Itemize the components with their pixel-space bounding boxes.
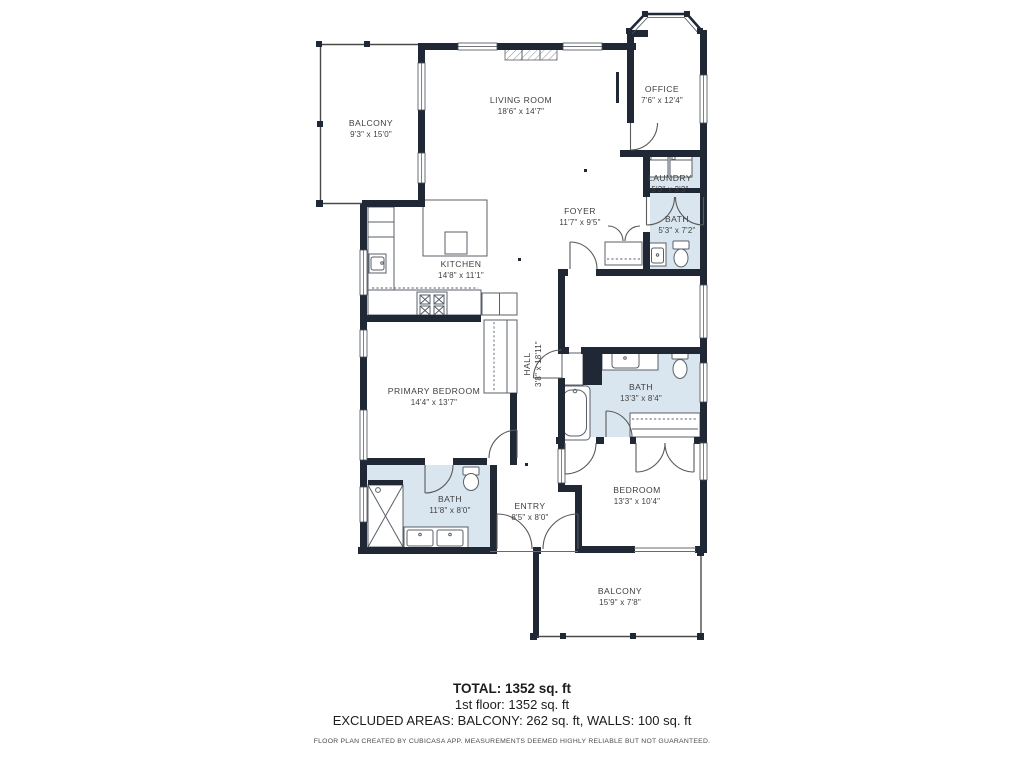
toilet-bowl — [673, 360, 687, 379]
window — [418, 153, 425, 183]
room-label-hall: HALL — [522, 352, 532, 375]
window — [458, 43, 497, 50]
toilet-bowl — [674, 249, 688, 267]
room-label-bath-upper: 5'3" x 7'2" — [658, 226, 695, 235]
room-label-bath-lower: BATH — [438, 494, 462, 504]
window — [558, 449, 565, 483]
double-door-bedroom-closet — [636, 443, 694, 472]
room-label-office: OFFICE — [645, 84, 679, 94]
floor-plan: BALCONY9'3" x 15'0"LIVING ROOM18'6" x 14… — [0, 0, 1024, 676]
room-label-bath-main: BATH — [629, 382, 653, 392]
window — [700, 443, 707, 480]
window — [360, 250, 367, 295]
room-label-bath-upper: BATH — [665, 214, 689, 224]
door-office — [631, 123, 658, 150]
window — [563, 43, 602, 50]
window — [700, 285, 707, 338]
room-label-foyer: FOYER — [564, 206, 596, 216]
toilet-bowl — [464, 474, 479, 491]
room-label-laundry: LAUNDRY — [648, 173, 692, 183]
room-label-balcony-top: BALCONY — [349, 118, 393, 128]
window — [418, 63, 425, 110]
door-foyer — [570, 242, 597, 269]
room-label-bedroom: 13'3" x 10'4" — [614, 497, 660, 506]
room-label-kitchen: 14'8" x 11'1" — [438, 271, 484, 280]
room-label-primary-bedroom: PRIMARY BEDROOM — [388, 386, 480, 396]
room-label-living-room: LIVING ROOM — [490, 95, 552, 105]
floor-plan-page: BALCONY9'3" x 15'0"LIVING ROOM18'6" x 14… — [0, 0, 1024, 768]
first-floor-area: 1st floor: 1352 sq. ft — [0, 697, 1024, 713]
window — [360, 410, 367, 460]
room-label-hall: 3'8" x 18'11" — [534, 341, 543, 387]
bath-closet — [630, 413, 700, 437]
total-area: TOTAL: 1352 sq. ft — [0, 681, 1024, 697]
room-label-office: 7'6" x 12'4" — [641, 96, 683, 105]
window — [360, 487, 367, 522]
window — [360, 330, 367, 357]
area-summary: TOTAL: 1352 sq. ft 1st floor: 1352 sq. f… — [0, 681, 1024, 747]
primary-closet — [484, 320, 517, 393]
room-label-bedroom: BEDROOM — [613, 485, 661, 495]
room-label-balcony-top: 9'3" x 15'0" — [350, 130, 392, 139]
bifold-closet-doors — [608, 226, 640, 241]
room-label-kitchen: KITCHEN — [441, 259, 482, 269]
room-label-entry: ENTRY — [514, 501, 545, 511]
foyer-closet — [605, 242, 642, 265]
room-label-primary-bedroom: 14'4" x 13'7" — [411, 398, 457, 407]
closet-nook — [562, 353, 583, 385]
door-bedroom — [565, 443, 596, 474]
window — [700, 363, 707, 402]
excluded-areas: EXCLUDED AREAS: BALCONY: 262 sq. ft, WAL… — [0, 713, 1024, 729]
disclaimer: FLOOR PLAN CREATED BY CUBICASA APP. MEAS… — [0, 737, 1024, 747]
room-label-laundry: 5'3" x 3'3" — [651, 185, 688, 194]
sliding-door-balcony — [634, 548, 696, 552]
toilet-tank — [673, 241, 689, 249]
room-label-living-room: 18'6" x 14'7" — [498, 107, 544, 116]
window — [700, 75, 707, 123]
room-label-bath-main: 13'3" x 8'4" — [620, 394, 662, 403]
room-label-foyer: 11'7" x 9'5" — [559, 218, 600, 227]
room-label-bath-lower: 11'8" x 8'0" — [429, 506, 470, 515]
kitchen-island — [423, 200, 487, 256]
room-label-entry: 8'5" x 8'0" — [511, 513, 548, 522]
room-label-balcony-bottom: BALCONY — [598, 586, 642, 596]
room-label-balcony-bottom: 15'9" x 7'8" — [599, 598, 641, 607]
